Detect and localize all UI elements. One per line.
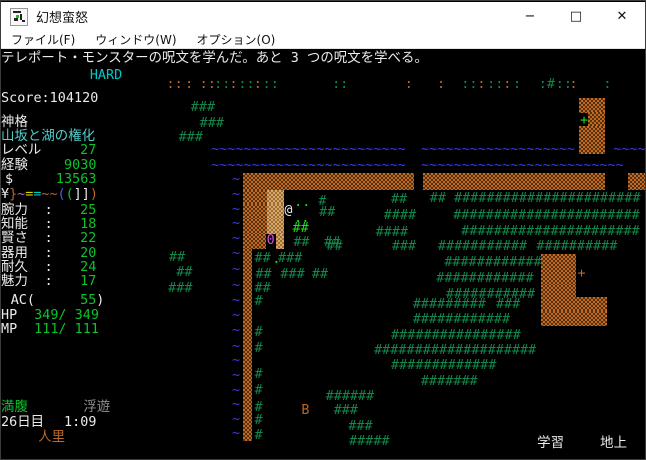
food-status: 満腹 — [1, 401, 28, 416]
map-glyph: :: — [263, 78, 279, 93]
map-glyph: : — [405, 78, 413, 93]
map-glyph: ################ — [391, 329, 521, 344]
map-glyph: ### — [334, 404, 358, 419]
map-glyph: ######### — [413, 298, 486, 313]
map-glyph: ~ — [232, 369, 240, 384]
map-glyph: ~ — [232, 427, 240, 442]
map-glyph: ############ — [413, 313, 510, 328]
hp-label: HP — [1, 309, 17, 324]
map-glyph: ############# — [391, 359, 496, 374]
map-glyph: ############ — [444, 256, 541, 271]
equip-slot: ¥ — [1, 188, 9, 203]
map-glyph: ####################### — [454, 192, 641, 207]
equip-slot: ~ — [17, 188, 25, 203]
equip-slot: ( — [66, 188, 74, 203]
map-glyph: ~ — [232, 217, 240, 232]
map-glyph: ### — [278, 252, 302, 267]
map-glyph: ### — [200, 117, 224, 132]
map-terrain-block — [267, 190, 284, 206]
map-glyph: # — [255, 368, 263, 383]
menu-item-file[interactable]: ファイル(F) — [1, 31, 85, 48]
wis-label: 賢さ — [1, 232, 28, 247]
map-glyph: # — [547, 78, 555, 93]
map-glyph: :: — [461, 78, 477, 93]
study-indicator: 学習 — [537, 437, 564, 452]
title-bar: 幻想蛮怒 − □ ✕ — [1, 1, 645, 31]
map-terrain-block — [276, 234, 285, 250]
map-terrain-block — [423, 173, 605, 191]
map-glyph: ### — [280, 268, 304, 283]
ac-label: AC( — [11, 294, 35, 309]
equip-slot: ( — [58, 188, 66, 203]
map-glyph: # — [255, 384, 263, 399]
map-glyph: : — [503, 78, 511, 93]
map-glyph: : — [254, 78, 262, 93]
map-glyph: : — [477, 78, 485, 93]
map-terrain-block — [579, 138, 605, 154]
map-glyph: ~ — [232, 354, 240, 369]
map-glyph: ~ — [232, 203, 240, 218]
map-terrain-block — [267, 219, 284, 235]
map-glyph: ~ — [232, 398, 240, 413]
map-glyph: :: — [487, 78, 503, 93]
wis-value: 22 — [80, 232, 96, 247]
message-line: テレポート・モンスターの呪文を学んだ。あと 3 つの呪文を学べる。 — [1, 52, 428, 67]
app-icon — [10, 8, 28, 26]
map-terrain-block — [243, 234, 266, 250]
map-glyph: : — [437, 78, 445, 93]
depth-indicator: 地上 — [600, 437, 627, 452]
map-glyph: : — [539, 78, 547, 93]
mp-value: 111/ 111 — [34, 323, 99, 338]
menu-item-options[interactable]: オプション(O) — [187, 31, 286, 48]
map-terrain-block — [541, 270, 576, 286]
map-glyph: :: — [332, 78, 348, 93]
map-terrain-block — [579, 98, 605, 114]
equip-slot: = — [25, 188, 33, 203]
map-terrain-block — [588, 112, 605, 128]
map-glyph: ~~~~ — [613, 143, 645, 158]
door: + — [578, 267, 586, 282]
map-glyph: ~ — [232, 232, 240, 247]
map-glyph: ### — [168, 282, 192, 297]
map-glyph: : — [513, 78, 521, 93]
map-glyph: ## — [293, 236, 309, 251]
map-glyph: ## — [391, 193, 407, 208]
close-button[interactable]: ✕ — [599, 2, 645, 31]
map-terrain-block — [243, 190, 267, 206]
map-glyph: #################### — [374, 344, 536, 359]
map-glyph: : — [45, 232, 53, 247]
clock: 1:09 — [64, 416, 96, 431]
map-glyph: ########## — [536, 240, 617, 255]
map-glyph: ####################### — [453, 209, 640, 224]
location-label: 人里 — [38, 431, 65, 446]
menu-item-window[interactable]: ウィンドウ(W) — [85, 31, 186, 48]
map-glyph: ~ — [232, 324, 240, 339]
equip-slot: ] — [74, 188, 82, 203]
equip-slot: ~ — [41, 188, 49, 203]
map-glyph: . — [294, 196, 302, 211]
window-controls: − □ ✕ — [507, 2, 645, 31]
map-glyph: ~ — [232, 263, 240, 278]
chr-label: 魅力 — [1, 275, 28, 290]
menu-bar: ファイル(F) ウィンドウ(W) オプション(O) — [1, 31, 645, 49]
window-title: 幻想蛮怒 — [36, 7, 88, 26]
map-glyph: ~ — [232, 247, 240, 262]
map-glyph: # — [255, 429, 263, 444]
map-glyph: . — [302, 196, 310, 211]
map-glyph: ## — [176, 266, 192, 281]
day-counter: 26日目 — [1, 416, 44, 431]
map-glyph: : — [603, 78, 611, 93]
map-glyph: ####### — [421, 375, 478, 390]
map-glyph: ###### — [326, 390, 375, 405]
map-glyph: ~ — [232, 384, 240, 399]
equip-slot: ] — [82, 188, 90, 203]
map-glyph: : — [185, 78, 193, 93]
exp-label: 経験 — [1, 159, 28, 174]
minimize-button[interactable]: − — [507, 2, 553, 31]
terminal[interactable]: テレポート・モンスターの呪文を学んだ。あと 3 つの呪文を学べる。HARDSco… — [1, 49, 646, 460]
map-glyph: #### — [384, 209, 416, 224]
equip-slot: = — [33, 188, 41, 203]
map-glyph: :: — [214, 78, 230, 93]
map-terrain-block — [243, 249, 251, 441]
map-glyph: ~ — [232, 309, 240, 324]
level-label: レベル — [1, 144, 41, 159]
gold-label: $ — [5, 173, 13, 188]
map-terrain-block — [541, 311, 606, 327]
map-terrain-block — [243, 219, 267, 235]
map-glyph: ########### — [438, 240, 527, 255]
map-glyph: : — [569, 78, 577, 93]
map-glyph: ~ — [232, 188, 240, 203]
mp-label: MP — [1, 323, 17, 338]
difficulty-label: HARD — [90, 69, 122, 84]
map-glyph: ### — [179, 131, 203, 146]
map-glyph: # — [255, 295, 263, 310]
map-glyph: ### — [348, 420, 372, 435]
map-glyph: ~ — [232, 340, 240, 355]
level-value: 27 — [80, 144, 96, 159]
map-terrain-block — [267, 204, 284, 220]
map-glyph: #### — [376, 226, 408, 241]
exp-value: 9030 — [64, 159, 96, 174]
map-glyph: ~~~~~~~~~~~~~~~~~~~~~~~~~ — [421, 159, 624, 174]
map-glyph: ## — [319, 206, 335, 221]
monster-0: 0 — [267, 234, 275, 249]
gold-value: 13563 — [56, 173, 97, 188]
monster-b: B — [301, 404, 309, 419]
map-glyph: ~ — [232, 279, 240, 294]
map-glyph: :: — [167, 78, 183, 93]
map-glyph: ## — [430, 192, 446, 207]
map-glyph: ############ — [436, 272, 533, 287]
map-terrain-block — [243, 173, 414, 191]
map-terrain-block — [628, 173, 646, 191]
map-glyph: :: — [238, 78, 254, 93]
map-glyph: ~ — [232, 173, 240, 188]
map-glyph: ### — [191, 101, 215, 116]
map-terrain-block — [243, 204, 267, 220]
map-glyph: ~~~~~~~~~~~~~~~~~~~ — [421, 143, 575, 158]
map-glyph: ~~~~~~~~~~~~~~~~~~~~~~~~ — [211, 143, 406, 158]
map-glyph: ## — [326, 240, 342, 255]
map-glyph: # — [255, 342, 263, 357]
map-glyph: ## — [169, 251, 185, 266]
map-glyph: ## — [255, 252, 271, 267]
map-glyph: : — [45, 275, 53, 290]
chr-value: 17 — [80, 275, 96, 290]
player-at: @ — [284, 204, 292, 219]
map-glyph: ~ — [232, 294, 240, 309]
map-glyph: ### — [496, 298, 520, 313]
equip-slot: ) — [90, 188, 98, 203]
equip-slot: ~ — [49, 188, 57, 203]
score: Score:104120 — [1, 92, 98, 107]
ac-value: 55 — [80, 294, 96, 309]
maximize-button[interactable]: □ — [553, 2, 599, 31]
map-glyph: ##### — [349, 435, 390, 450]
map-glyph: ###################### — [461, 225, 639, 240]
app-window: 幻想蛮怒 − □ ✕ ファイル(F) ウィンドウ(W) オプション(O) テレポ… — [0, 0, 646, 460]
hp-value: 349/ 349 — [34, 309, 99, 324]
map-glyph: : — [230, 78, 238, 93]
map-glyph: # — [255, 326, 263, 341]
equip-slot: } — [9, 188, 17, 203]
map-glyph: ### — [392, 240, 416, 255]
map-glyph: # — [255, 414, 263, 429]
map-terrain-block — [541, 254, 576, 270]
levitation-status: 浮遊 — [83, 401, 110, 416]
map-glyph: ~~~~~~~~~~~~~~~~~~~~~~~~ — [211, 159, 406, 174]
map-glyph: ## — [312, 268, 328, 283]
map-glyph: ) — [96, 294, 104, 309]
